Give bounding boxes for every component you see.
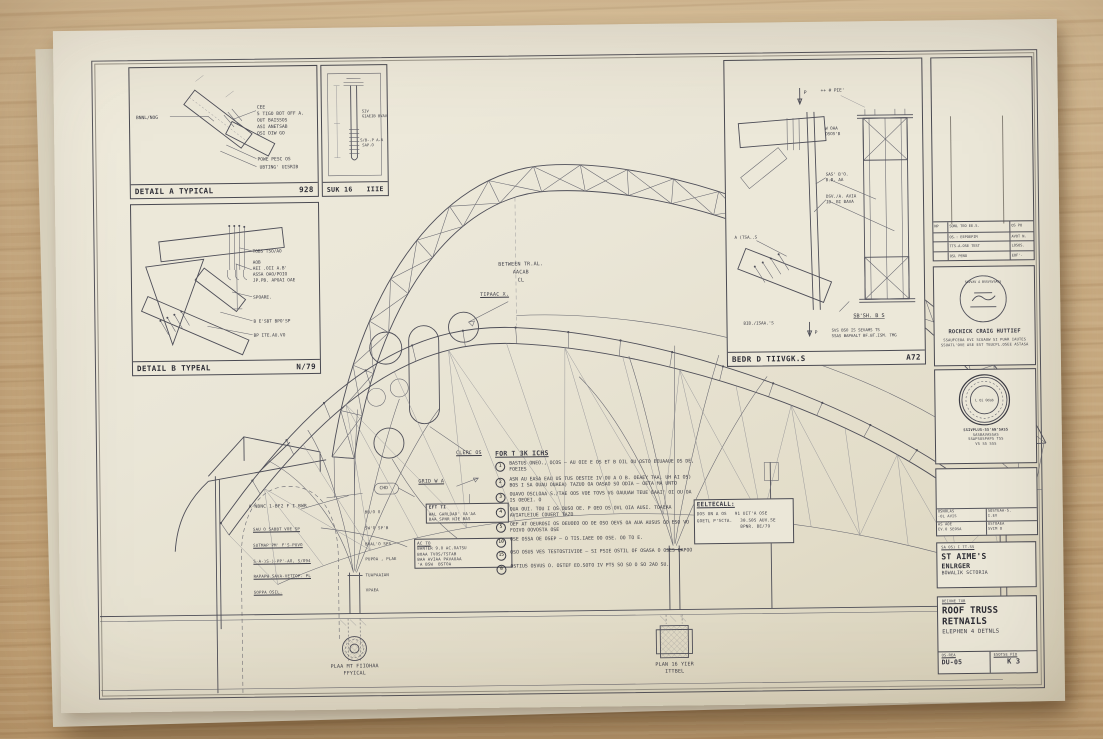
section-ref: IIIE [367,185,384,193]
detail-d-load-label: P [815,330,818,336]
seal-center-text: L Oi Odab [975,398,993,402]
detail-a-note: CEE [257,105,266,111]
engineer-stamp-box: SUVVAV A BSSVSVSASS ROCHICK CRAIG HUTTIE… [933,265,1036,366]
note-text: OEF AT OEUROSI OS OEUOEO OO OE OSO OEVS … [510,520,696,534]
right-note-line: BU/O O [365,509,396,515]
right-note-line: VPAEA [366,587,397,593]
detail-d-note: W OAA [825,126,838,131]
left-note-2-line: SAU O SABBT VOE SP [253,526,310,532]
project-location: BOWALIK SCTORIA [942,570,1032,577]
detail-d-note: OSOS'B [825,131,841,136]
detail-b-note: B E'SBT BPO'SP [253,318,290,324]
stamp-arc-text: SUVVAV A BSSVSVSASS [965,280,1002,284]
rev-cell: OSL PENO [948,251,1010,260]
project-title-box: SA OS) I TT.SS ST AIME'S ENLRGER BOWALIK… [936,541,1037,588]
detail-d-load-label: P [804,90,807,96]
detail-b-note: AEI .OII A.B' [253,265,287,271]
note-number: 3 [496,492,506,502]
note-number: 5 [496,523,506,533]
note-number: 8 [496,564,506,574]
detail-a-left-label: BNNL/NOG [136,115,158,121]
detail-a-figure: BNNL/NOG CEE 5 TIGO BOT OFF A. OUT BAISS… [129,66,317,185]
detail-b-title: DETAIL B TYPEAL [137,363,211,373]
left-note-2-line: SUTMAP'PM' F'S-PUVO [253,542,310,548]
rev-cell: EOF'- [1010,251,1034,260]
typical-callout-label: TIPAAC X. [480,292,509,299]
plan-right-sublabel: ITTBEL [637,668,713,675]
detail-a-panel: BNNL/NOG CEE 5 TIGO BOT OFF A. OUT BAISS… [128,65,319,199]
detail-a-title: DETAIL A TYPICAL [135,186,214,196]
revision-box-rule [1002,116,1004,224]
detail-b-note: SPOARE. [253,295,272,301]
detail-b-note: JP.PB. APOAI OAE [253,277,296,284]
detail-a-note: POWE PESC OS [257,156,290,162]
detail-d-note: B.B. AA [826,177,844,182]
detail-d-note: IB. BI BAVA [826,199,854,204]
engineer-logo-stamp: SUVVAV A BSSVSVSASS [934,266,1033,329]
arch-label-line2: AACAB [481,269,561,276]
left-note-2-line: SOPPA OSIL. [254,589,311,595]
detail-d-note: A (TSA..S [734,235,757,240]
round-seal-stamp: L Oi Odab [935,369,1034,428]
detail-d-title-bar: BEDR D TIIVGK.S A72 [728,350,925,366]
notes-title: FOR T 3K ICHS [495,447,695,458]
detail-a-note: ASI ANETSAB [257,124,288,130]
section-note: GIAEIB BVAVA [362,113,388,118]
right-note-line: PUPOA , PLAE [365,556,396,562]
detail-a-note: UBTING' UISRIB [260,164,299,170]
detail-a-note: OSI DIW GO [257,130,285,136]
spec-box: EELTECALL: DOS ON A OS 91 UIT'A OSE GOET… [694,498,795,544]
detail-a-note: OUT BAISSOS [257,117,288,123]
revision-box-rule [950,116,952,224]
general-notes: FOR T 3K ICHS 1BASTUS ONEO., OCOS — AU O… [495,447,697,577]
rev-cell: NP [933,222,947,232]
sig-cell: -OL AVIS [938,513,985,518]
detail-b-note: BP ITE.AU.VO [254,332,286,338]
detail-b-figure: TOBS TSO/AO AOB AEI .OII A.B' ASSA OAO/P… [131,203,320,362]
right-note-line: BVAL'O SPS [365,540,396,546]
sheet-subtitle: ELEPHEN 4 DETNLS [942,628,1032,636]
scale-value: DU-05 [942,657,987,666]
detail-d-section-label: SB'SH. B S [853,313,884,319]
left-note-1: A-NBNC 1-BF2 F I BWR [249,504,307,511]
sig-cell: I.EV [988,513,1036,518]
anchor-bolt-figure: SIV GIAEIB BVAVA S/B-.P A-A SAP.O [321,65,387,183]
rev-cell: AVOT N. [1009,232,1033,241]
project-tag: SA OS) I TT.SS [941,544,1031,550]
note-text: OSTIUS OSVUS O. OSTEF EO.SOTO IV PTS SO … [510,562,669,570]
note-text: OUAVO OSCLOAA S./TAE OOS VOE TOVS VG OAU… [510,490,696,504]
detail-d-ref: A72 [906,353,921,362]
detail-b-note: AOB [253,260,261,266]
note-text: BASTUS ONEO., OCOS — AU OIE E OS ET B OI… [509,460,695,474]
drawing-number: K 3 [994,657,1034,667]
note-number: 15 [496,551,506,561]
detail-b-panel: TOBS TSO/AO AOB AEI .OII A.B' ASSA OAO/P… [130,202,321,376]
detail-a-title-bar: DETAIL A TYPICAL 928 [131,182,318,198]
arch-label-centerline: CL [481,277,561,284]
right-note-line: SW'O SP'B [365,525,396,531]
seal-stamp-box: L Oi Odab SSIVPLUS-SS'AN'SASS SASBAVASSA… [934,368,1037,464]
detail-d-note: SAS' B'O. [826,171,849,176]
section-title: SUK 16 [327,185,353,193]
detail-b-title-bar: DETAIL B TYPEAL N/79 [133,359,320,375]
detail-a-note: 5 TIGO BOT OFF A. [257,111,304,118]
signature-table: OSNOLAS -OL AVIS SOSTEAA-S. I.EV AS AOE … [937,507,1037,535]
note-text: OUA OUI. TOU I OS OUSO OE. P OEO OS OVL … [510,505,696,519]
arch-label-line1: BETWEEN TR.AL. [481,261,561,268]
left-note-2-line: RAPAPW SAVA-VETTOP. PL [254,573,311,579]
blueprint-sheet: BETWEEN TR.AL. AACAB CL TIPAAC X. GRID W… [53,19,1065,713]
section-note: SAP.O [362,142,374,147]
grid-label: GRID W A [418,478,444,485]
detail-a-ref: 928 [299,185,314,194]
chd-tag: CHD [379,486,388,492]
section-title-bar: SUK 16 IIIE [323,181,388,196]
rev-cell [934,252,948,261]
revision-table: NP SONL TEO EE.S. OS PO OS.: EEPOEPIM AV… [933,220,1033,260]
detail-d-panel: ++ # PIE' P P W OAA OSOS'B SAS' B'O. B.B… [723,58,926,367]
sheet-tag: BEIVNE TXB [942,598,1032,604]
note-text: ASN AU EASA EAU US TUS OESTIE IV OU A O … [509,475,695,489]
detail-d-figure: ++ # PIE' P P W OAA OSOS'B SAS' B'O. B.B… [724,59,925,353]
engineer-address: SSUATL'OVE ASE EST TEUCPL.OSEE ASTASA [935,342,1035,348]
note-text: OSE OSSA OE OSEP — O TIS.IAEE OO OSE. OO… [510,536,643,544]
revision-box: NP SONL TEO EE.S. OS PO OS.: EEPOEPIM AV… [930,56,1034,261]
seal-caption: VS SS SSS [936,441,1036,447]
detail-b-note: TOBS TSO/AO [253,248,283,254]
clerestory-label: CLERC OS [456,450,482,457]
note-number: 10 [496,538,506,548]
plan-left-sublabel: FFYICAL [313,670,397,678]
rev-cell: LOSOS. [1010,241,1034,250]
note-text: OSO OSUS VES TESTOSTIVIOE — SI PSIE OSTI… [510,549,692,557]
detail-b-ref: N/79 [296,362,316,371]
rev-cell [933,233,947,242]
sig-cell: SVIM O [988,526,1036,531]
note-number: 1 [495,462,505,472]
note-number: 4 [496,508,506,518]
detail-d-note: BIB./ISAA.'S [743,320,774,325]
sheet-title-box: BEIVNE TXB ROOF TRUSS RETNAILS ELEPHEN 4… [937,595,1038,674]
anchor-bolt-section-panel: SIV GIAEIB BVAVA S/B-.P A-A SAP.O SUK 16… [320,64,389,197]
detail-d-note: ++ # PIE' [821,87,845,93]
signature-box: OSNOLAS -OL AVIS SOSTEAA-S. I.EV AS AOE … [935,467,1038,536]
engineer-name: ROCHICK CRAIG HUTTIEF [935,328,1035,336]
detail-b-note: ASSA OAO/POIO [253,271,288,277]
rev-cell [934,242,948,251]
sig-cell: EV.O SEOSA [938,526,985,531]
desk-surface: BETWEEN TR.AL. AACAB CL TIPAAC X. GRID W… [0,0,1103,739]
left-note-2-line: S-A-)S-)-PP'-AO, S/O94 [253,558,310,564]
note-number: 2 [495,477,505,487]
sheet-number-row: OS-REA DU-05 ESOTSE PIO K 3 [939,650,1037,673]
right-note-line: TUAPAAIAN [366,572,397,578]
detail-d-note: SSAS BAPAALT BF.BT.ISM. TMG [832,332,898,338]
rev-cell: OS PO [1009,221,1033,231]
detail-d-title: BEDR D TIIVGK.S [732,354,806,364]
